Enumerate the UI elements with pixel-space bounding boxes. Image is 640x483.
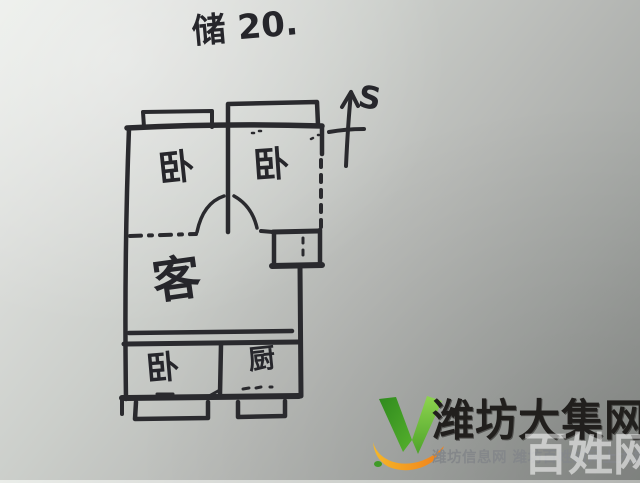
arrow-crossbar xyxy=(329,129,364,132)
door-arc-left xyxy=(197,196,224,232)
wall-top xyxy=(127,125,322,128)
window-dashes xyxy=(243,387,272,389)
ink-specks xyxy=(252,131,319,139)
room-label-bedroom-bottom-left: 卧 xyxy=(145,347,181,389)
wall-dashed-left xyxy=(130,234,196,236)
site-logo: 潍坊大集网 潍坊信息网 潍坊百姓的网上大集 百姓网 xyxy=(368,390,640,480)
wall-right-bottom xyxy=(300,266,301,396)
door-arc-right xyxy=(234,196,257,228)
sketch-title: 储 20. xyxy=(190,3,299,52)
room-label-bedroom-top-right: 卧 xyxy=(252,144,291,187)
wall-living-bottom-1 xyxy=(129,331,292,333)
compass-label: S xyxy=(355,79,383,118)
bath-top xyxy=(273,231,318,232)
room-label-kitchen: 厨 xyxy=(247,343,277,377)
wall-bottom-divider xyxy=(220,345,221,394)
wall-left xyxy=(125,128,129,399)
compass-arrow: S xyxy=(329,79,384,166)
balcony-bottom-right xyxy=(238,401,285,417)
balcony-bottom-left xyxy=(135,402,208,419)
balcony-top-right xyxy=(228,102,318,125)
floor-plan: 卧 卧 客 卧 厨 xyxy=(122,102,322,419)
bath-bottom xyxy=(272,265,322,266)
logo-watermark-overlay: 百姓网 xyxy=(523,418,640,483)
room-label-living: 客 xyxy=(149,249,204,311)
room-label-bedroom-top-left: 卧 xyxy=(156,146,196,191)
